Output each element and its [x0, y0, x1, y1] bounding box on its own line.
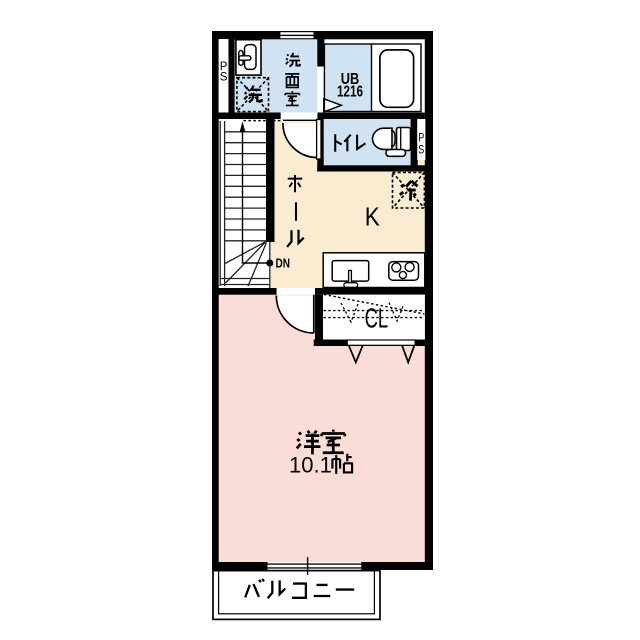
svg-text:P: P — [418, 132, 424, 144]
svg-text:S: S — [418, 145, 424, 157]
svg-text:S: S — [220, 72, 228, 84]
svg-text:10.1: 10.1 — [289, 452, 332, 477]
svg-text:CL: CL — [365, 303, 389, 334]
svg-text:K: K — [365, 204, 380, 232]
svg-text:DN: DN — [276, 257, 291, 271]
svg-text:1216: 1216 — [337, 84, 363, 101]
